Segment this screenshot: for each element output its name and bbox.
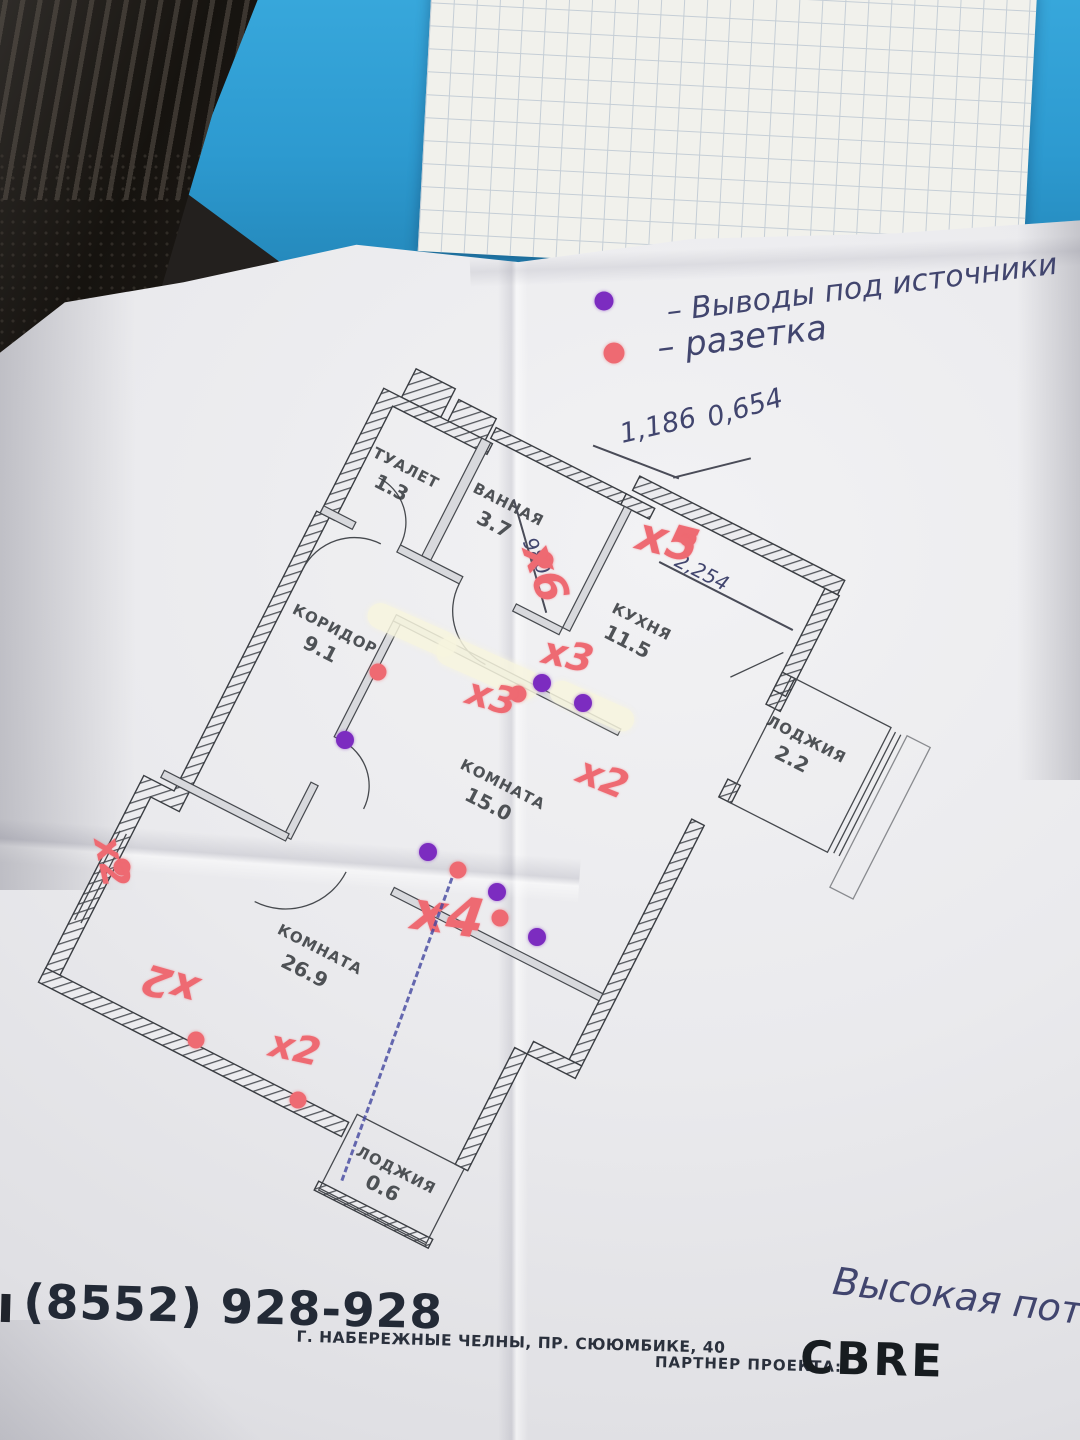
marker-count-x2: x2 [571, 748, 635, 808]
partner-logo-cbre: CBRE [799, 1331, 945, 1388]
marker-count-x5: x5 [632, 506, 705, 573]
footer-strip: (8552) 928-928 Г. НАБЕРЕЖНЫЕ ЧЕЛНЫ, ПР. … [0, 1266, 1080, 1440]
socket-dot [492, 910, 509, 927]
socket-dot [370, 664, 387, 681]
legend-socket-dot [604, 343, 625, 364]
annotations-layer: – Выводы под источники – разетка 1,186 0… [0, 0, 1080, 1440]
socket-dot [450, 862, 467, 879]
logo-fragment [1, 1294, 11, 1322]
dimension-0654: 0,654 [704, 382, 787, 433]
power-outlet-dot [336, 731, 354, 749]
marker-count-x2: x2 [266, 1021, 325, 1075]
legend-outlet-dot [595, 292, 614, 311]
marker-count-x3: x3 [539, 628, 598, 682]
legend-outlets-label: – Выводы под источники [665, 247, 1060, 330]
power-outlet-dot [488, 883, 506, 901]
marker-count-x2: x2 [85, 833, 139, 892]
photo-scene: ТУАЛЕТ 1.3 ВАННАЯ 3.7 КУХНЯ 11.5 КОРИДОР… [0, 0, 1080, 1440]
pen-dashed-divider [340, 877, 453, 1181]
power-outlet-dot [528, 928, 546, 946]
dimension-arrow [673, 457, 751, 478]
power-outlet-dot [533, 674, 551, 692]
dimension-arrow [593, 445, 680, 480]
power-outlet-dot [574, 694, 592, 712]
power-outlet-dot [419, 843, 437, 861]
whiteout-mark [546, 677, 638, 736]
marker-count-x2: x2 [136, 954, 204, 1017]
dimension-1186: 1,186 [617, 402, 699, 450]
socket-dot [290, 1092, 307, 1109]
socket-dot [188, 1032, 205, 1049]
